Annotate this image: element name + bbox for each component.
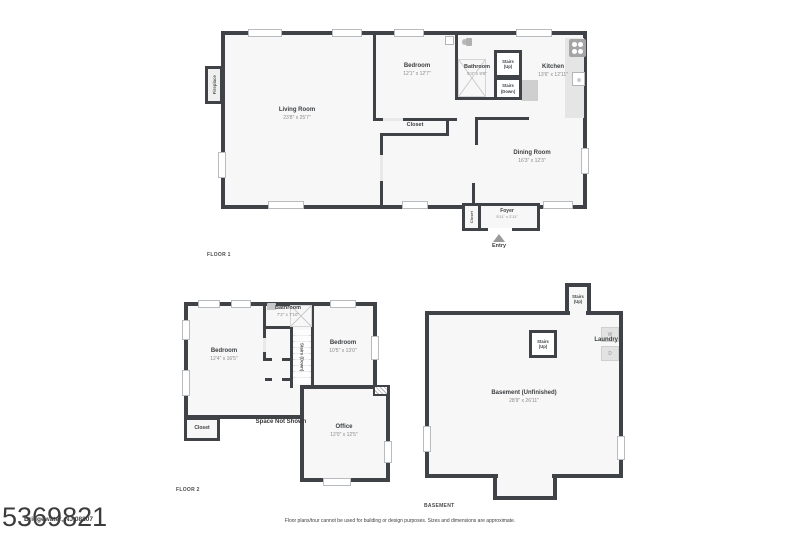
wall — [265, 378, 272, 381]
door-opening — [263, 338, 266, 352]
window — [402, 201, 428, 209]
window — [394, 29, 424, 37]
room-label-living-room: Living Room 23'8" x 25'7" — [257, 107, 337, 121]
window — [268, 201, 304, 209]
door-opening — [383, 118, 403, 121]
wall — [282, 358, 291, 361]
entry-label: Entry — [484, 243, 514, 249]
tower-stairs-label: Stairs (Up) — [565, 285, 591, 313]
wall — [263, 326, 293, 329]
room-label-bathroom2: Bathroom 7'2" x 7'10" — [258, 305, 318, 318]
window — [332, 29, 362, 37]
wall — [282, 378, 291, 381]
fireplace-label: Fireplace — [212, 75, 217, 94]
foyer-closet-label: Closet — [469, 211, 474, 223]
wall — [478, 206, 481, 228]
wall — [472, 183, 475, 205]
window — [218, 152, 226, 178]
closet-label: Closet — [395, 122, 435, 128]
foyer-closet: Closet — [464, 206, 478, 228]
room-label-office: Office 12'0" x 12'5" — [309, 424, 379, 438]
window — [581, 148, 589, 174]
wall — [265, 358, 272, 361]
wall — [475, 117, 478, 145]
toilet-icon — [462, 37, 473, 47]
floor-plan-page: Fireplace Stairs (Up) Stairs (Down) — [0, 0, 800, 533]
window — [182, 370, 190, 396]
window — [617, 436, 625, 460]
wall — [380, 133, 449, 136]
window — [182, 320, 190, 340]
room-label-basement: Basement (Unfinished) 28'9" x 26'11" — [474, 390, 574, 404]
chimney-hatch — [373, 385, 389, 396]
window — [543, 201, 573, 209]
dryer-icon: D — [601, 346, 619, 361]
room-label-bedroom-right: Bedroom 10'5" x 13'0" — [308, 340, 378, 354]
window — [231, 300, 251, 308]
window — [423, 426, 431, 452]
stair-landing — [522, 80, 538, 101]
wall — [455, 97, 497, 100]
door-opening — [380, 155, 383, 181]
room-label-bedroom-left: Bedroom 12'4" x 16'5" — [189, 348, 259, 362]
closet-label: Closet — [184, 425, 220, 431]
floor2-label: FLOOR 2 — [176, 487, 200, 493]
room-label-bedroom: Bedroom 12'1" x 12'7" — [382, 63, 452, 77]
disclaimer-text: Floor plans/tour cannot be used for buil… — [0, 518, 800, 524]
wall — [373, 35, 376, 121]
room-label-foyer: Foyer 5'11" x 2'11" — [485, 208, 529, 219]
window — [323, 478, 351, 486]
space-not-shown-label: Space Not Shown — [231, 419, 331, 425]
window — [384, 441, 392, 463]
wall — [446, 118, 449, 136]
laundry-label: Laundry — [574, 337, 618, 343]
entry-arrow-icon — [493, 234, 505, 242]
wall — [373, 118, 383, 121]
wall-patch — [498, 470, 552, 478]
entry-opening — [488, 228, 512, 231]
window — [198, 300, 220, 308]
room-label-dining-room: Dining Room 16'3" x 12'3" — [497, 150, 567, 164]
window — [516, 29, 552, 37]
wall-patch — [304, 389, 377, 417]
window — [248, 29, 282, 37]
basement-label: BASEMENT — [424, 503, 454, 509]
stairs-up-box-label: Stairs (Up) — [537, 339, 549, 350]
wall — [475, 117, 529, 120]
stairs-down-label: Stairs (Down) — [300, 343, 305, 371]
stairs-up-label: Stairs (Up) — [502, 59, 514, 70]
fireplace: Fireplace — [205, 66, 223, 104]
vanity-icon — [445, 36, 454, 45]
stairs-down-strip: Stairs (Down) — [295, 330, 309, 384]
room-label-bathroom: Bathroom 5'4" x 9'6" — [452, 64, 502, 77]
stairs-down: Stairs (Down) — [494, 77, 522, 100]
wall — [380, 181, 383, 205]
room-label-kitchen: Kitchen 13'6" x 12'11" — [523, 64, 583, 78]
stairs-down-label: Stairs (Down) — [501, 83, 515, 94]
floor1-label: FLOOR 1 — [207, 252, 231, 258]
stairs-up-box: Stairs (Up) — [529, 330, 557, 358]
stove-icon — [569, 39, 586, 57]
wall — [380, 133, 383, 155]
window — [330, 300, 356, 308]
